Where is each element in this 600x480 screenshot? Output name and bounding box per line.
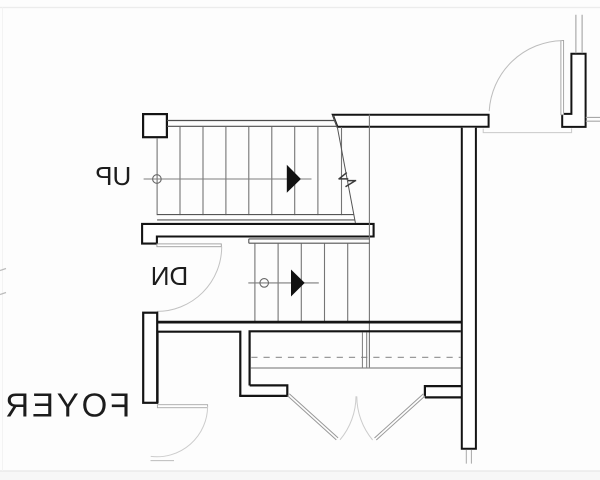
svg-text:UP: UP (95, 161, 131, 191)
svg-text:FOYER: FOYER (3, 387, 131, 424)
svg-text:DN: DN (151, 261, 189, 291)
